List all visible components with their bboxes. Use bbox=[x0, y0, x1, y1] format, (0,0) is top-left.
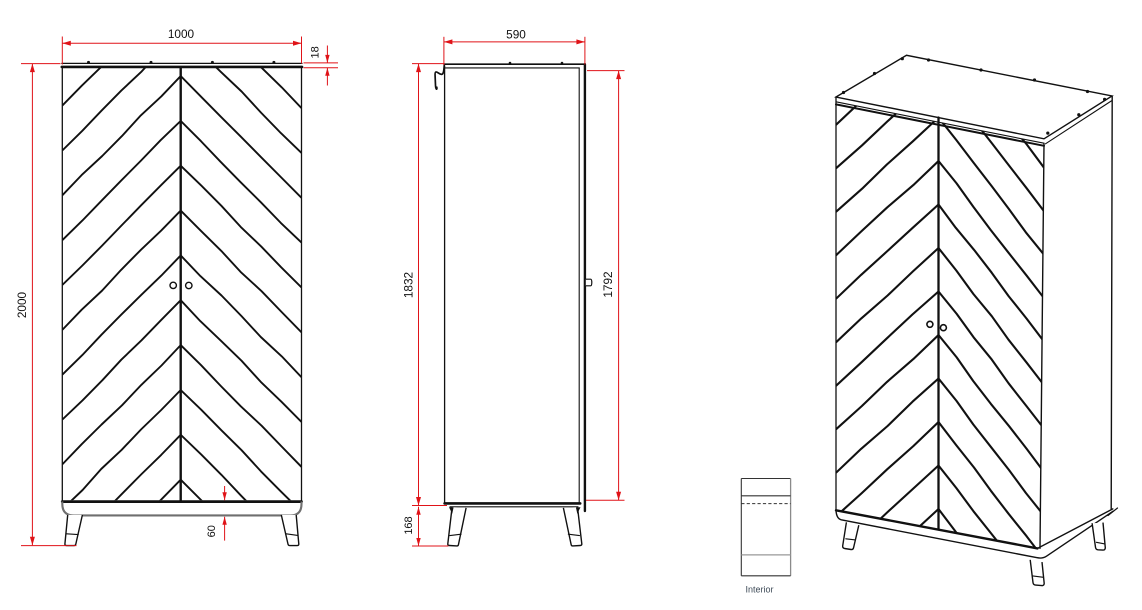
svg-text:1792: 1792 bbox=[601, 271, 615, 297]
svg-text:590: 590 bbox=[506, 27, 526, 41]
svg-text:18: 18 bbox=[310, 46, 322, 58]
svg-text:1000: 1000 bbox=[168, 27, 195, 41]
svg-text:Interior: Interior bbox=[745, 585, 773, 595]
svg-text:168: 168 bbox=[403, 516, 415, 534]
svg-text:60: 60 bbox=[206, 525, 218, 537]
svg-text:2000: 2000 bbox=[15, 291, 29, 318]
svg-text:1832: 1832 bbox=[402, 272, 416, 298]
